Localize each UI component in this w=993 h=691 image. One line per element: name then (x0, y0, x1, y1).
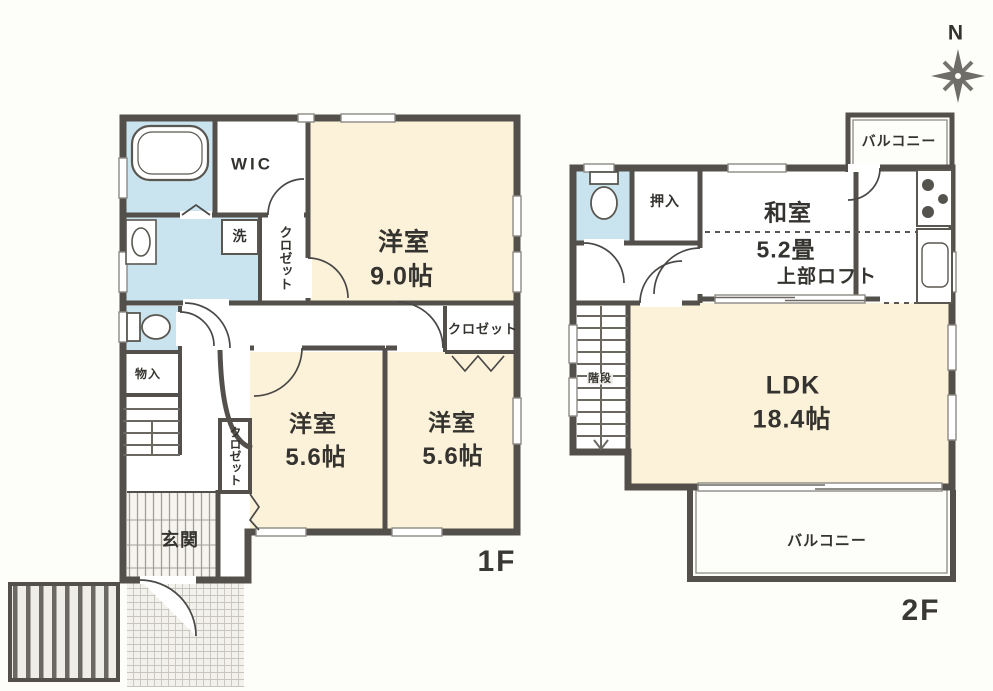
wic-label: WIC (231, 156, 273, 173)
washbasin-icon (126, 220, 156, 264)
floor2-plan (569, 115, 956, 579)
laundry-label: 洗 (233, 229, 248, 243)
toilet-icon-1f (127, 313, 170, 341)
balcony-bottom-label: バルコニー (787, 534, 867, 549)
storage-label: 物入 (135, 368, 161, 380)
bedroom9-size: 9.0帖 (370, 265, 434, 290)
ldk-name: LDK (766, 374, 820, 399)
stairs-label: 階段 (587, 374, 613, 385)
exterior-steps (10, 584, 118, 680)
closet-bedroom-right-label: クロゼット (448, 323, 518, 336)
bedroom56-left-name: 洋室 (289, 413, 337, 436)
stove-icon (917, 170, 952, 226)
bedroom56-right-size: 5.6帖 (422, 445, 483, 469)
bedroom9-name: 洋室 (378, 231, 430, 256)
balcony-top-label: バルコニー (862, 134, 937, 148)
toilet-icon-2f (590, 172, 618, 219)
entrance-label: 玄関 (161, 531, 199, 549)
japanese-room-name: 和室 (764, 202, 812, 225)
floor1-plan (10, 114, 521, 687)
floorplan-page: N WIC 洋室 9.0帖 クロゼット 洗 物入 クロゼット クロゼット 洋室 … (0, 0, 993, 691)
sink-icon (917, 229, 952, 303)
closet-washroom-label: クロゼット (279, 226, 292, 291)
ldk-size: 18.4帖 (753, 408, 832, 433)
compass-north-label: N (948, 23, 964, 44)
bedroom56-right-name: 洋室 (428, 412, 476, 435)
porch-floor (127, 583, 244, 687)
bathtub-icon (132, 126, 208, 180)
japanese-room-loft: 上部ロフト (777, 268, 877, 287)
compass-rose-icon (931, 49, 985, 103)
bedroom56-left-size: 5.6帖 (285, 446, 346, 470)
floor1-label: 1F (477, 547, 516, 577)
oshiire-label: 押入 (650, 194, 680, 208)
japanese-room-size: 5.2畳 (757, 239, 816, 262)
floor2-label: 2F (901, 596, 940, 626)
closet-bedroom-left-label: クロゼット (229, 426, 241, 486)
floorplan-drawing (0, 0, 993, 691)
